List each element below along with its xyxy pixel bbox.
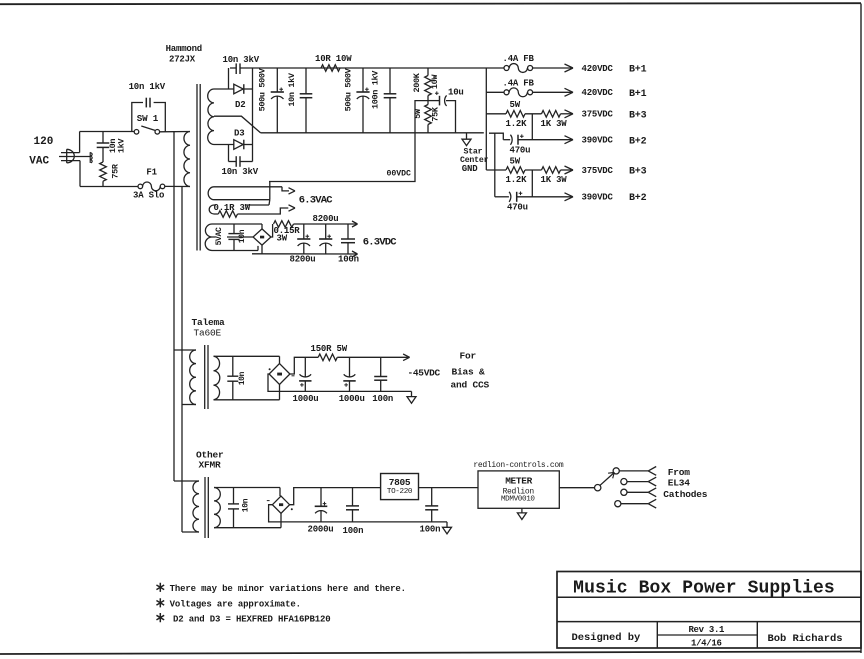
- svg-text:Music Box Power Supplies: Music Box Power Supplies: [573, 579, 835, 599]
- svg-text:5VAC: 5VAC: [215, 227, 224, 245]
- svg-text:2000u: 2000u: [308, 525, 334, 535]
- svg-text:5W: 5W: [510, 100, 521, 110]
- svg-text:10u: 10u: [448, 88, 464, 98]
- svg-text:Designed by: Designed by: [572, 632, 642, 644]
- svg-text:10n 3kV: 10n 3kV: [223, 55, 260, 65]
- svg-text:00VDC: 00VDC: [387, 170, 411, 179]
- svg-text:8200u: 8200u: [313, 214, 339, 224]
- svg-text:1/4/16: 1/4/16: [691, 639, 722, 649]
- svg-text:10W: 10W: [430, 74, 440, 90]
- svg-text:390VDC: 390VDC: [582, 192, 614, 202]
- svg-text:10n 3kV: 10n 3kV: [222, 167, 259, 177]
- svg-text:XFMR: XFMR: [199, 460, 222, 471]
- svg-text:B+3: B+3: [629, 167, 647, 178]
- svg-text:100n 1kV: 100n 1kV: [371, 70, 381, 109]
- svg-text:EL34: EL34: [668, 478, 691, 489]
- svg-text:6.3VDC: 6.3VDC: [363, 236, 398, 248]
- svg-text:6.3VAC: 6.3VAC: [299, 194, 334, 206]
- svg-text:.4A FB: .4A FB: [503, 54, 535, 64]
- svg-text:470u: 470u: [510, 145, 531, 155]
- svg-text:500u 500V: 500u 500V: [258, 67, 268, 111]
- svg-text:redlion-controls.com: redlion-controls.com: [473, 461, 564, 470]
- svg-text:100n: 100n: [343, 526, 364, 536]
- svg-text:B+3: B+3: [629, 110, 647, 121]
- svg-text:375VDC: 375VDC: [582, 110, 614, 120]
- svg-text:1.2K: 1.2K: [506, 175, 528, 185]
- svg-text:3W: 3W: [277, 233, 288, 243]
- svg-text:5W: 5W: [413, 108, 423, 119]
- svg-text:420VDC: 420VDC: [582, 88, 614, 98]
- svg-text:B+2: B+2: [629, 136, 647, 147]
- svg-text:200K: 200K: [412, 72, 422, 92]
- svg-text:1000u: 1000u: [293, 394, 319, 404]
- svg-text:470u: 470u: [507, 202, 528, 212]
- svg-text:For: For: [460, 351, 477, 362]
- svg-text:GND: GND: [462, 164, 478, 174]
- svg-text:1K 3W: 1K 3W: [541, 119, 568, 129]
- svg-text:Voltages are approximate.: Voltages are approximate.: [170, 600, 301, 610]
- svg-text:1kV: 1kV: [116, 138, 126, 154]
- svg-text:272JX: 272JX: [169, 55, 196, 65]
- svg-text:10n: 10n: [238, 371, 247, 385]
- svg-text:Rev 3.1: Rev 3.1: [688, 625, 725, 635]
- svg-text:75R: 75R: [111, 163, 121, 179]
- svg-text:Bias &: Bias &: [452, 366, 486, 377]
- svg-text:Ta60E: Ta60E: [194, 327, 222, 338]
- svg-text:VAC: VAC: [29, 156, 49, 168]
- svg-text:SW 1: SW 1: [137, 113, 159, 124]
- svg-text:There may be minor variations: There may be minor variations here and t…: [170, 584, 406, 594]
- svg-text:100n: 100n: [338, 255, 359, 265]
- svg-text:Cathodes: Cathodes: [663, 489, 708, 500]
- svg-text:1000u: 1000u: [339, 394, 365, 404]
- svg-text:.4A FB: .4A FB: [503, 78, 535, 88]
- svg-text:Bob Richards: Bob Richards: [768, 633, 843, 645]
- svg-text:100n: 100n: [420, 525, 441, 535]
- svg-text:METER: METER: [505, 476, 532, 487]
- svg-text:B+1: B+1: [629, 89, 647, 100]
- svg-text:10n 1kV: 10n 1kV: [129, 82, 166, 92]
- svg-text:10n: 10n: [238, 229, 247, 243]
- svg-text:100n: 100n: [372, 394, 393, 404]
- svg-text:10n: 10n: [242, 498, 251, 512]
- svg-text:TO-220: TO-220: [387, 488, 413, 496]
- svg-text:1K 3W: 1K 3W: [541, 175, 568, 185]
- svg-text:B+2: B+2: [629, 193, 647, 204]
- svg-text:F1: F1: [146, 168, 157, 178]
- svg-text:500u 500V: 500u 500V: [343, 67, 353, 111]
- svg-text:150R 5W: 150R 5W: [311, 344, 348, 354]
- svg-text:From: From: [668, 467, 691, 478]
- svg-text:and CCS: and CCS: [451, 379, 490, 390]
- svg-text:10R 10W: 10R 10W: [315, 54, 352, 64]
- svg-text:75K: 75K: [431, 106, 441, 122]
- svg-text:MDMV0010: MDMV0010: [501, 495, 535, 503]
- svg-text:D2 and D3 = HEXFRED HFA16PB120: D2 and D3 = HEXFRED HFA16PB120: [173, 614, 331, 624]
- svg-text:7805: 7805: [389, 477, 411, 488]
- svg-text:Hammond: Hammond: [166, 44, 202, 54]
- svg-text:0.1R 3W: 0.1R 3W: [214, 203, 251, 213]
- svg-text:420VDC: 420VDC: [582, 64, 614, 74]
- svg-text:-45VDC: -45VDC: [408, 368, 441, 379]
- svg-text:120: 120: [34, 136, 54, 148]
- svg-text:375VDC: 375VDC: [582, 166, 614, 176]
- svg-text:8200u: 8200u: [290, 255, 316, 265]
- svg-text:1.2K: 1.2K: [506, 119, 528, 129]
- svg-text:3A Slo: 3A Slo: [133, 191, 164, 201]
- svg-text:D2: D2: [235, 100, 245, 110]
- svg-text:10n 1kV: 10n 1kV: [287, 72, 297, 107]
- svg-text:5W: 5W: [510, 156, 521, 166]
- svg-text:390VDC: 390VDC: [582, 136, 614, 146]
- svg-text:D3: D3: [234, 129, 244, 139]
- svg-text:B+1: B+1: [629, 65, 647, 76]
